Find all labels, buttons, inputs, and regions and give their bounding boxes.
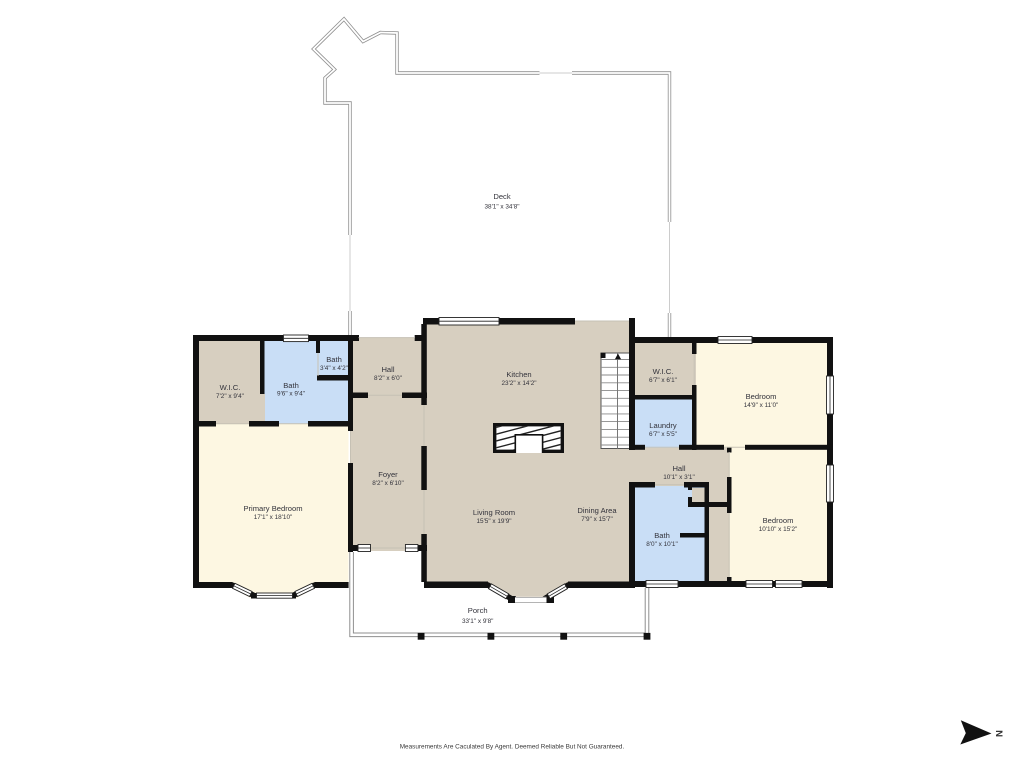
svg-text:Hall: Hall [672,464,685,473]
svg-text:8'0" x 10'1": 8'0" x 10'1" [646,541,678,548]
svg-text:Foyer: Foyer [378,470,398,479]
svg-text:W.I.C.: W.I.C. [653,367,674,376]
svg-text:33'1" x 9'8": 33'1" x 9'8" [462,618,494,625]
svg-text:14'9" x 11'0": 14'9" x 11'0" [744,402,779,409]
svg-text:Primary Bedroom: Primary Bedroom [243,504,302,513]
svg-text:7'2" x 9'4": 7'2" x 9'4" [216,393,244,400]
svg-text:Dining Area: Dining Area [577,506,617,515]
svg-text:Bedroom: Bedroom [746,392,777,401]
svg-text:10'10" x 15'2": 10'10" x 15'2" [759,526,798,533]
svg-text:W.I.C.: W.I.C. [220,383,241,392]
svg-text:10'1" x 3'1": 10'1" x 3'1" [663,474,695,481]
svg-text:Bath: Bath [654,531,670,540]
svg-text:38'1" x 34'8": 38'1" x 34'8" [484,204,519,211]
svg-text:Measurements Are Caculated By: Measurements Are Caculated By Agent. Dee… [400,744,625,751]
svg-text:17'1" x 18'10": 17'1" x 18'10" [254,514,293,521]
svg-text:Bath: Bath [326,355,342,364]
svg-text:Hall: Hall [381,365,394,374]
svg-text:15'5" x 19'9": 15'5" x 19'9" [476,518,511,525]
svg-text:9'6" x 9'4": 9'6" x 9'4" [277,391,305,398]
svg-text:6'7" x 5'5": 6'7" x 5'5" [649,431,677,438]
svg-text:8'2" x 6'0": 8'2" x 6'0" [374,375,402,382]
svg-text:3'4" x 4'2": 3'4" x 4'2" [320,365,348,372]
svg-text:Bath: Bath [283,381,299,390]
svg-text:23'2" x 14'2": 23'2" x 14'2" [501,380,536,387]
svg-text:Laundry: Laundry [649,421,677,430]
svg-text:N: N [993,730,1004,737]
svg-text:Kitchen: Kitchen [506,370,531,379]
svg-text:8'2" x 6'10": 8'2" x 6'10" [372,480,404,487]
svg-text:Porch: Porch [468,606,488,615]
svg-text:6'7" x 6'1": 6'7" x 6'1" [649,377,677,384]
svg-text:Bedroom: Bedroom [763,516,794,525]
svg-text:Living Room: Living Room [473,508,515,517]
svg-text:7'9" x 15'7": 7'9" x 15'7" [581,516,613,523]
svg-text:Deck: Deck [493,192,511,201]
